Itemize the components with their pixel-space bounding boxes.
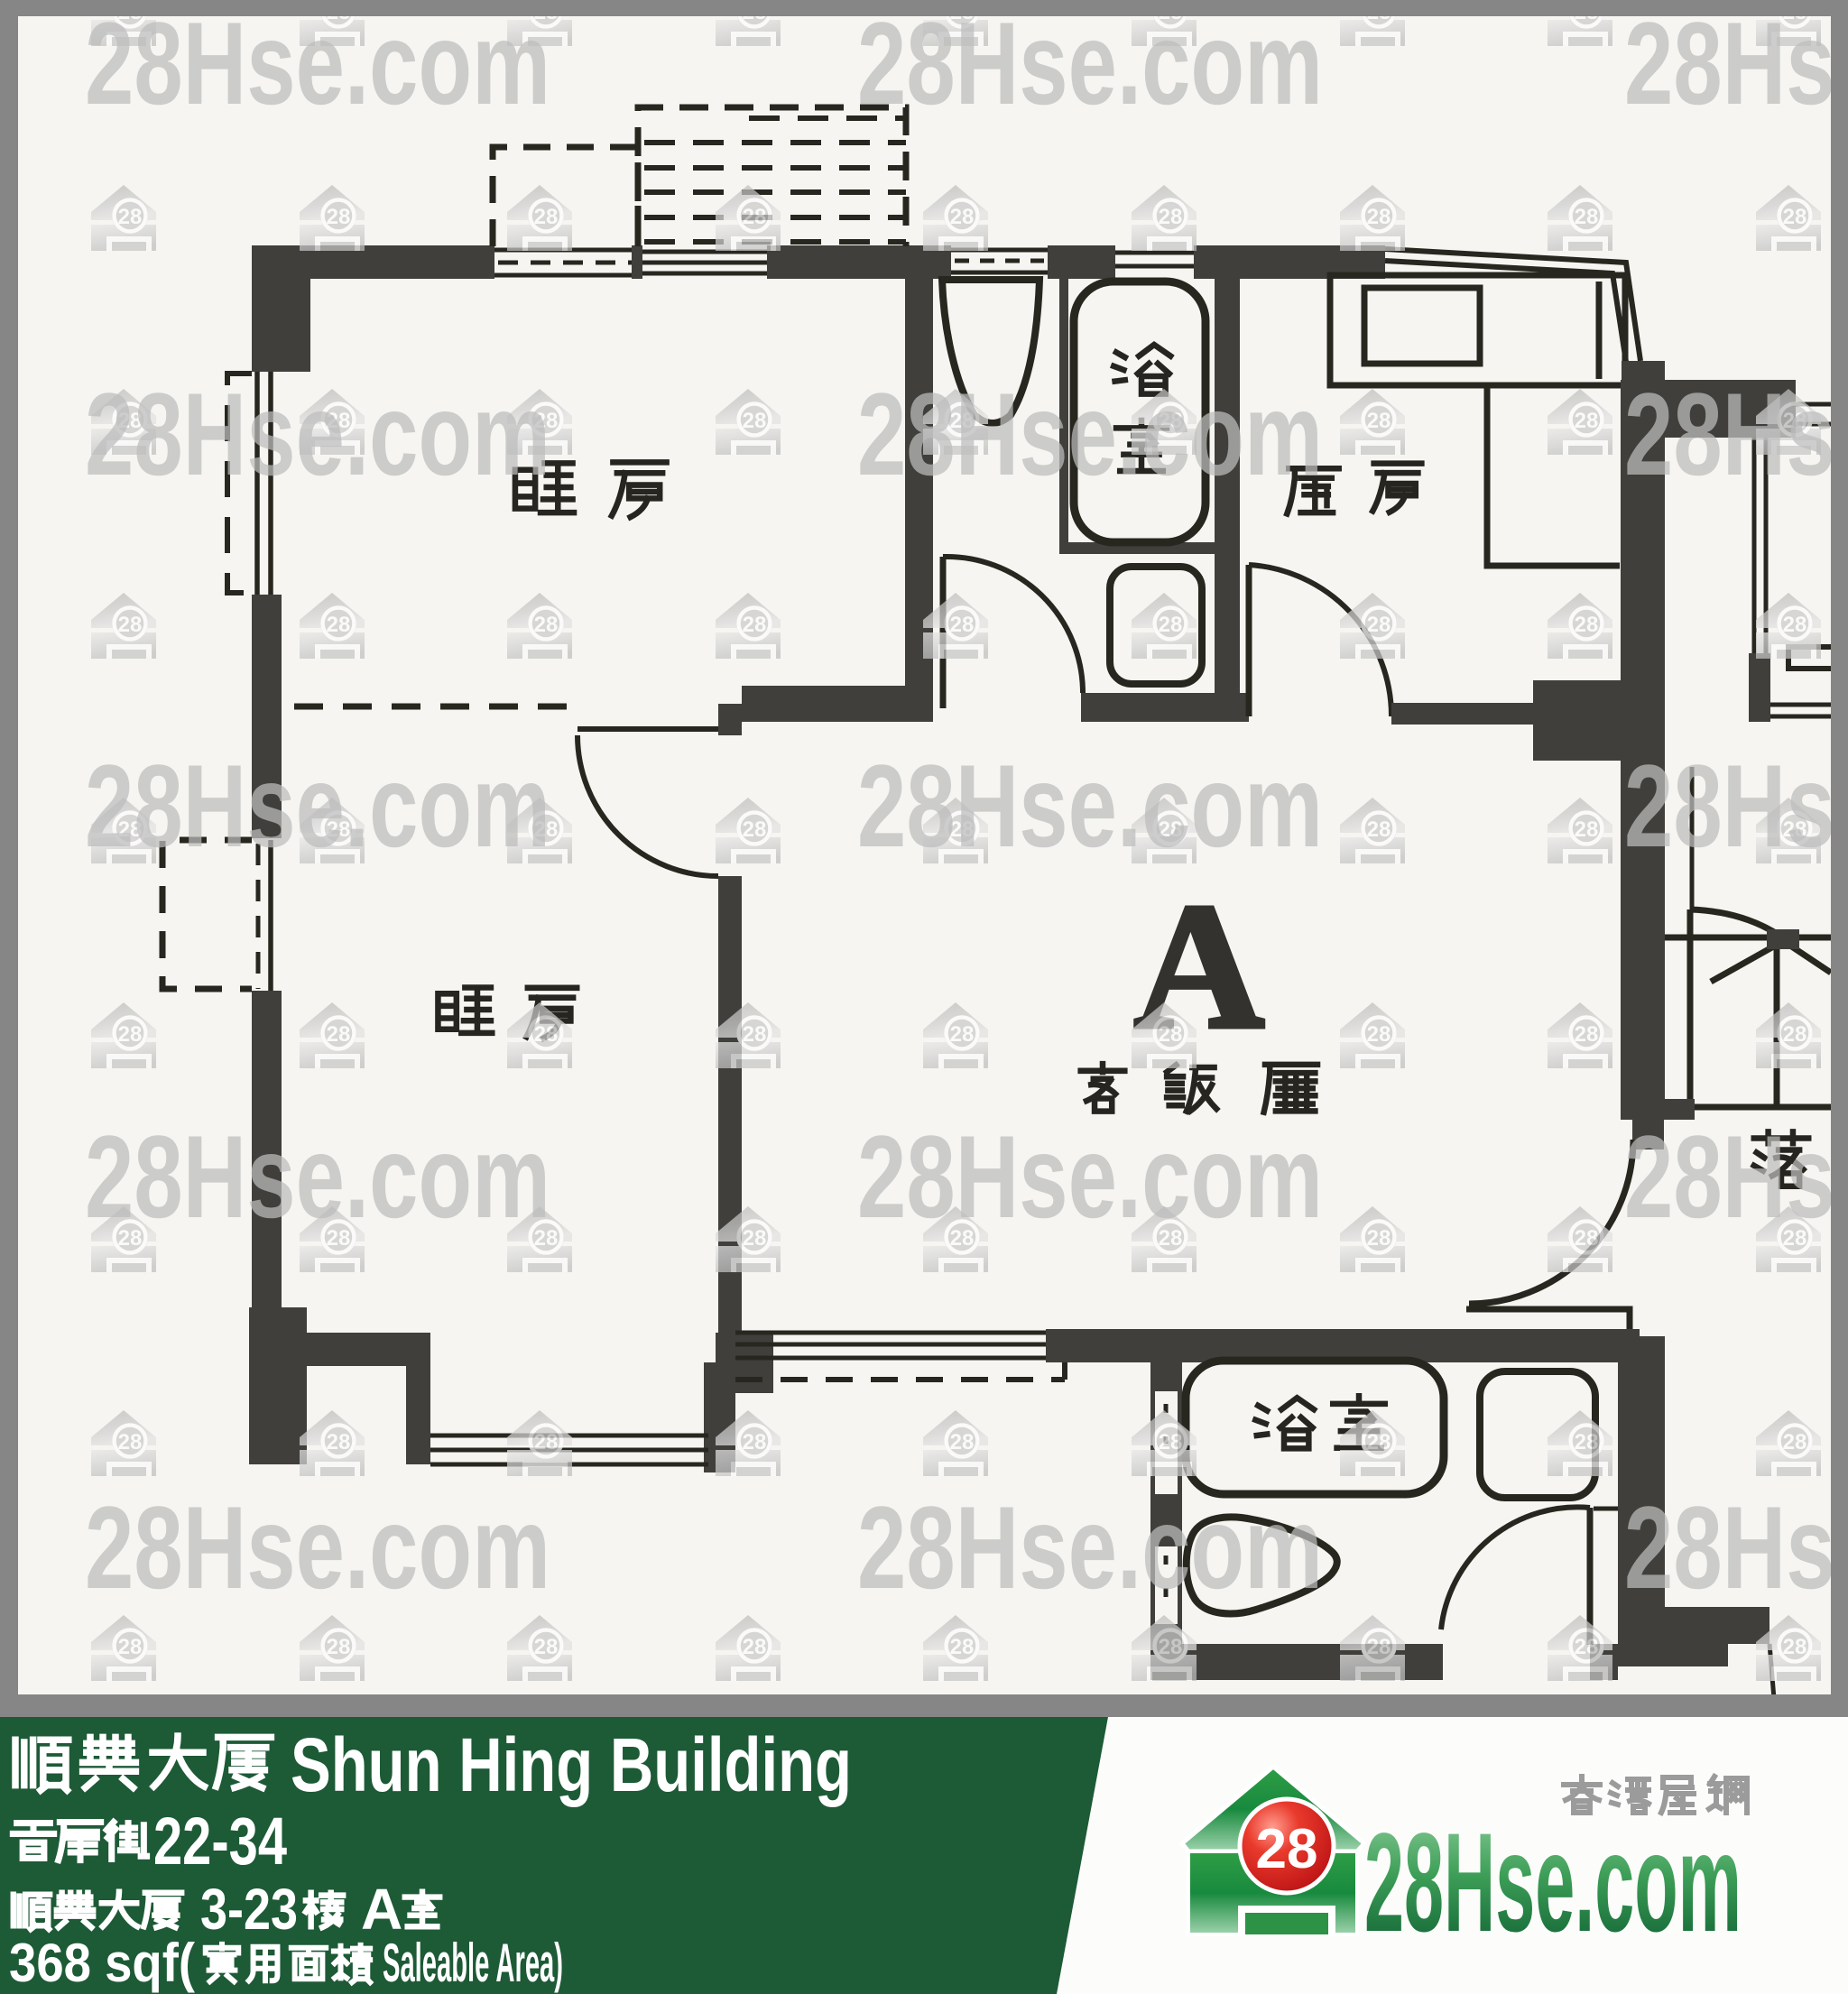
svg-text:28Hse.com: 28Hse.com — [85, 740, 550, 872]
svg-text:28Hse.com: 28Hse.com — [1624, 1482, 1848, 1613]
svg-text:28Hse.com: 28Hse.com — [1624, 740, 1848, 872]
svg-text:28Hse.com: 28Hse.com — [857, 740, 1323, 872]
svg-text:368 sqf(: 368 sqf( — [9, 1933, 195, 1993]
svg-text:28Hse.com: 28Hse.com — [857, 0, 1323, 129]
svg-text:3-23: 3-23 — [200, 1877, 298, 1942]
svg-text:28Hse.com: 28Hse.com — [1624, 0, 1848, 129]
svg-text:28Hse.com: 28Hse.com — [1624, 1111, 1848, 1242]
svg-text:28Hse.com: 28Hse.com — [857, 1482, 1323, 1613]
svg-text:28Hse.com: 28Hse.com — [1364, 1805, 1742, 1962]
svg-text:Saleable Area): Saleable Area) — [383, 1933, 563, 1993]
svg-text:28Hse.com: 28Hse.com — [857, 368, 1323, 500]
svg-text:28Hse.com: 28Hse.com — [85, 368, 550, 500]
svg-text:28Hse.com: 28Hse.com — [85, 1111, 550, 1242]
svg-text:28: 28 — [1256, 1818, 1318, 1880]
svg-text:28Hse.com: 28Hse.com — [85, 0, 550, 129]
svg-text:22-34: 22-34 — [153, 1804, 287, 1879]
svg-text:Shun Hing Building: Shun Hing Building — [291, 1722, 852, 1807]
svg-text:28Hse.com: 28Hse.com — [85, 1482, 550, 1613]
svg-text:28Hse.com: 28Hse.com — [857, 1111, 1323, 1242]
svg-text:28Hse.com: 28Hse.com — [1624, 368, 1848, 500]
